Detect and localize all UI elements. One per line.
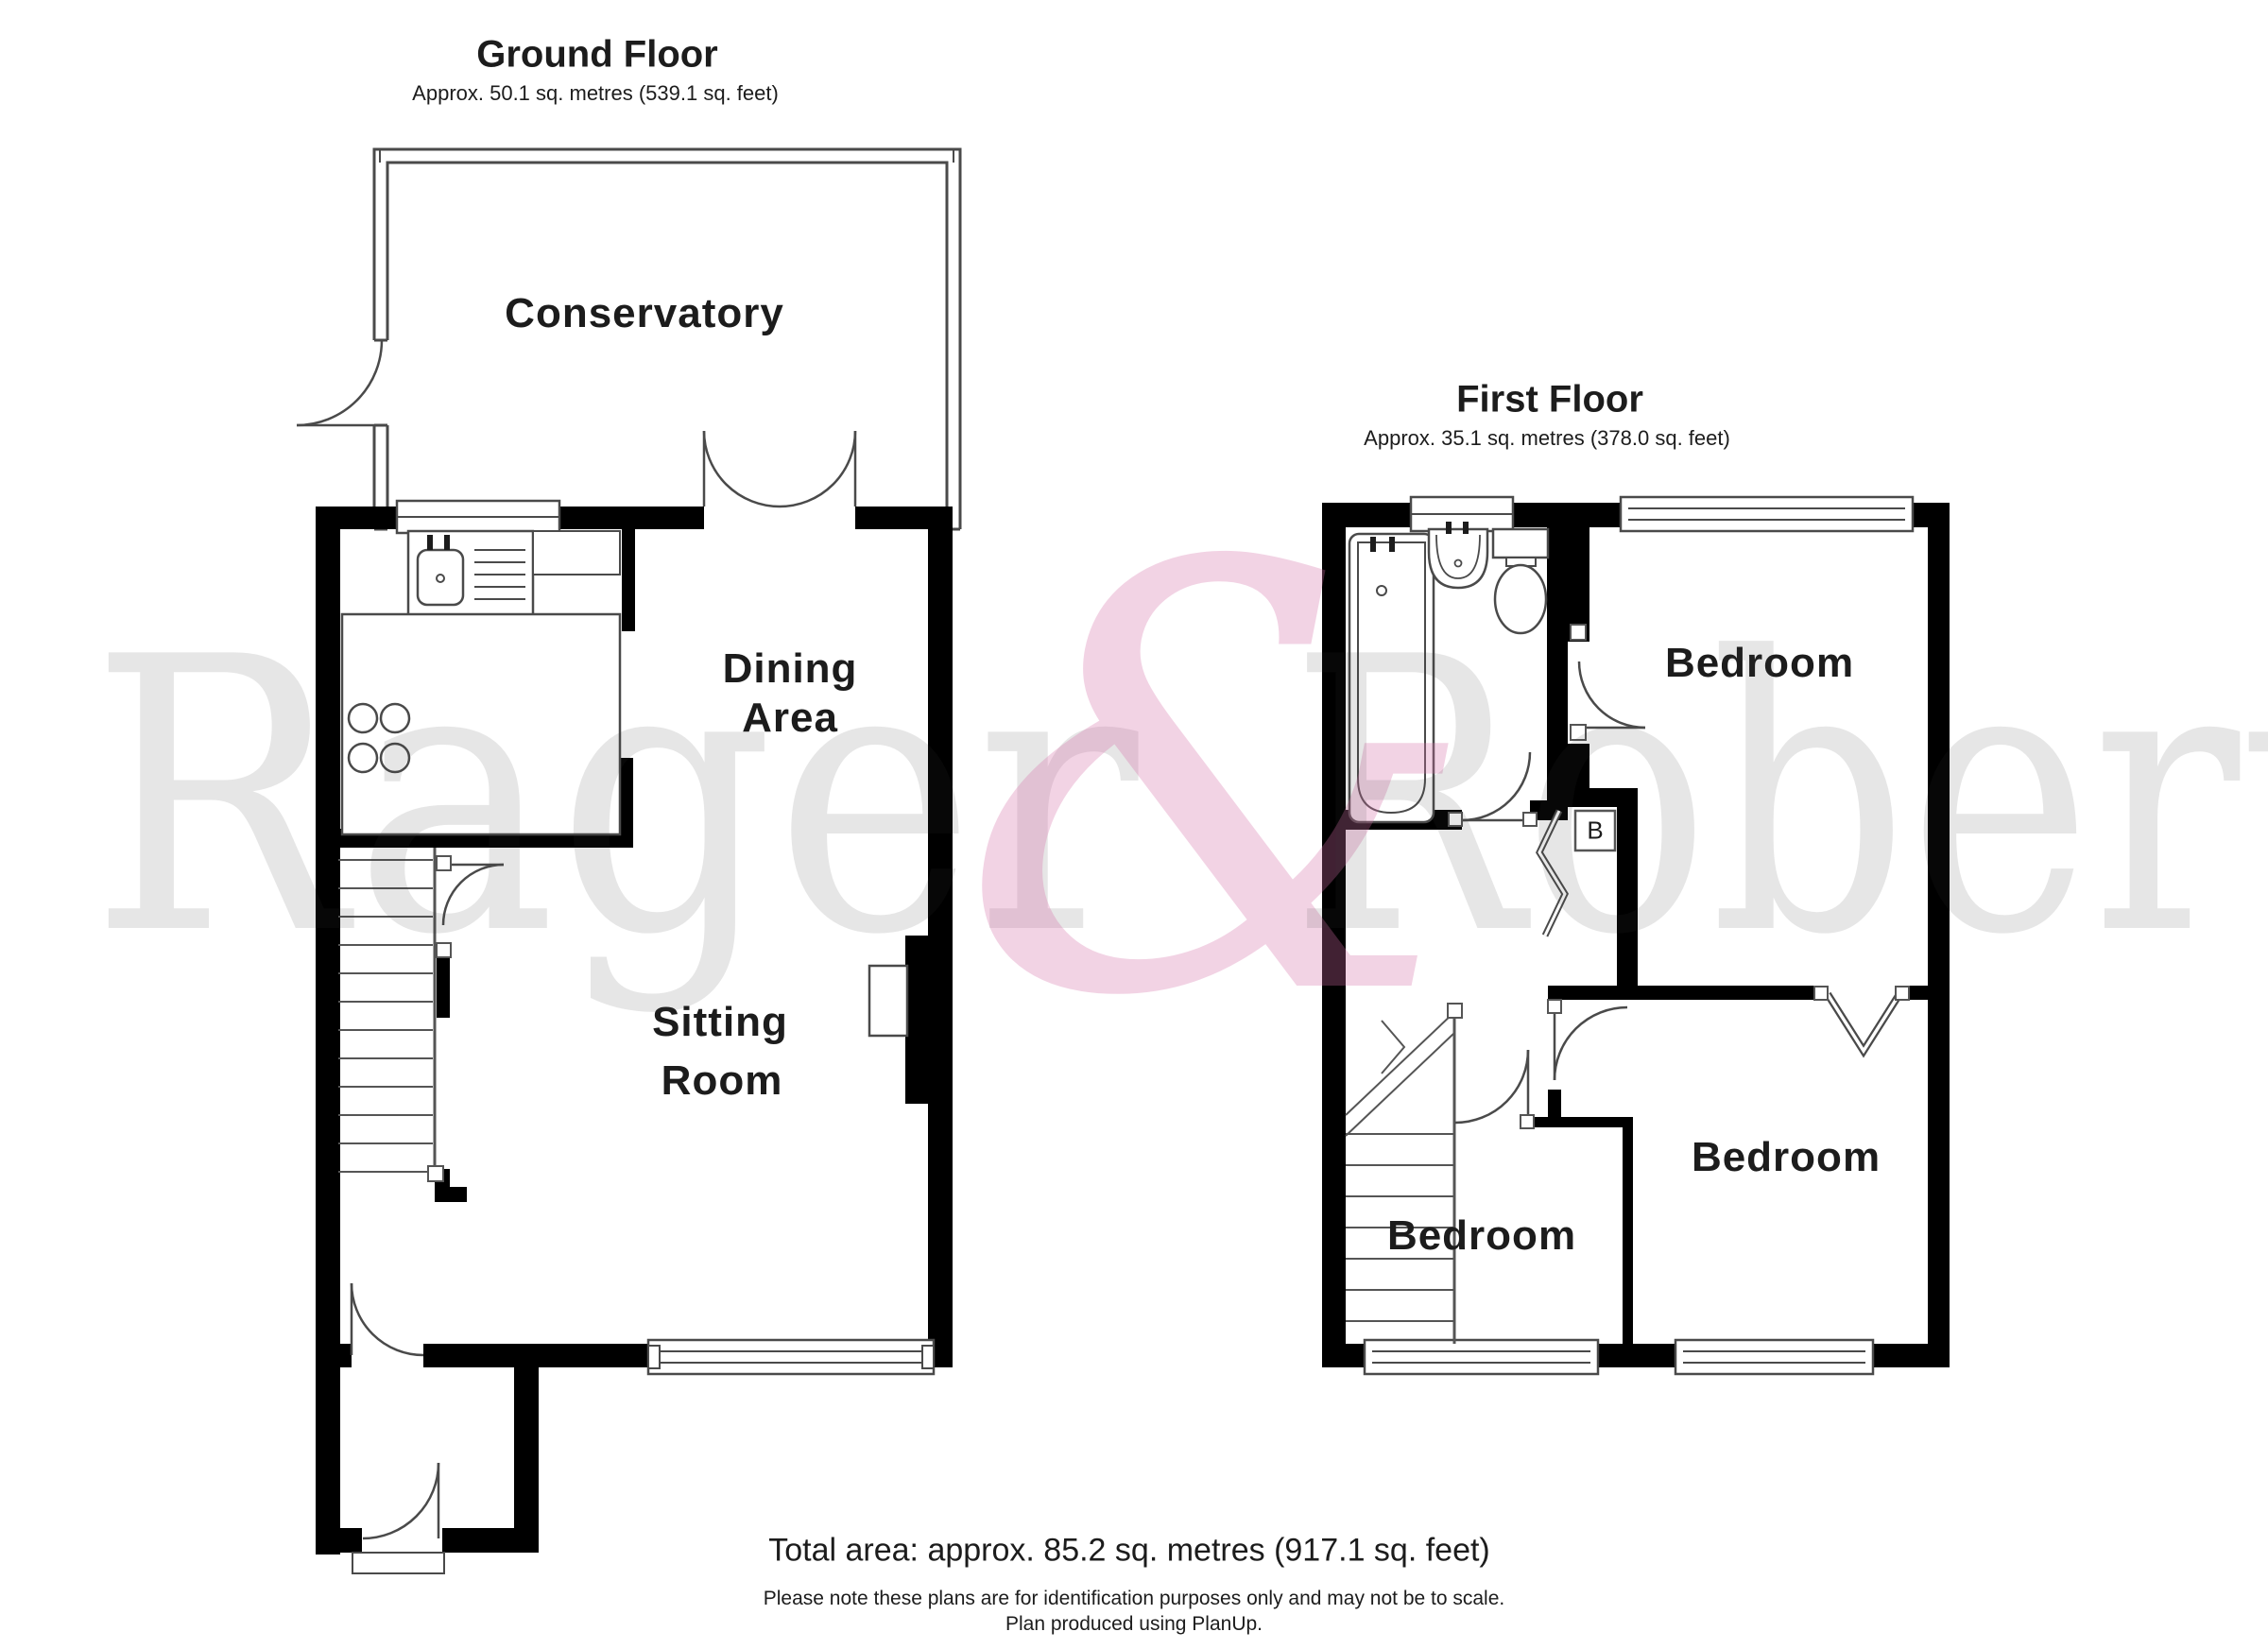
room-label-dining-2: Area: [742, 694, 838, 743]
bedroom-left-door: [1455, 1050, 1534, 1128]
bedroom-right-door: [1548, 1000, 1627, 1080]
bathroom-door: [1449, 752, 1537, 826]
floorplan-drawing: [0, 0, 2268, 1649]
room-label-sitting-1: Sitting: [652, 998, 788, 1047]
first-floor-stairs: [1346, 1004, 1462, 1344]
total-area-text: Total area: approx. 85.2 sq. metres (917…: [768, 1533, 1490, 1570]
fireplace: [869, 936, 953, 1104]
room-label-bedroom-left: Bedroom: [1387, 1211, 1576, 1261]
disclaimer-text: Please note these plans are for identifi…: [764, 1588, 1505, 1610]
ground-floor-plan: [297, 149, 960, 1573]
sitting-room-window: [648, 1340, 934, 1374]
kitchen-sink-unit: [408, 531, 620, 616]
hall-door: [352, 1283, 423, 1355]
ground-floor-title: Ground Floor: [476, 34, 718, 77]
room-label-bedroom-right: Bedroom: [1692, 1133, 1881, 1182]
ground-floor-area: Approx. 50.1 sq. metres (539.1 sq. feet): [412, 81, 779, 106]
first-floor-title: First Floor: [1456, 379, 1643, 421]
airing-cupboard-doors: [1539, 811, 1565, 936]
room-label-sitting-2: Room: [661, 1056, 783, 1106]
kitchen-window: [397, 501, 559, 533]
wardrobe-doors: [1814, 987, 1909, 1051]
first-floor-area: Approx. 35.1 sq. metres (378.0 sq. feet): [1364, 426, 1730, 451]
toilet-fixture: [1493, 529, 1548, 633]
bedroom-left-window: [1365, 1340, 1598, 1374]
front-door: [352, 1463, 444, 1573]
floorplan-sheet: Ground Floor Approx. 50.1 sq. metres (53…: [0, 0, 2268, 1649]
stairs-door: [428, 856, 504, 1181]
conservatory-glazed-walls: [374, 149, 960, 529]
bedroom-right-window: [1675, 1340, 1873, 1374]
producer-text: Plan produced using PlanUp.: [1005, 1613, 1263, 1636]
ground-stairs: [338, 848, 435, 1172]
french-doors: [704, 431, 855, 507]
basin-fixture: [1429, 522, 1487, 588]
boiler-label: B: [1587, 816, 1603, 846]
bathroom-window: [1411, 497, 1513, 531]
bedroom-top-door: [1571, 625, 1645, 740]
bath-fixture: [1349, 534, 1434, 822]
room-label-bedroom-top: Bedroom: [1665, 639, 1854, 688]
room-label-dining-1: Dining: [723, 644, 858, 694]
room-label-conservatory: Conservatory: [505, 289, 784, 338]
bedroom-top-window: [1621, 497, 1913, 531]
conservatory-door: [297, 340, 382, 425]
